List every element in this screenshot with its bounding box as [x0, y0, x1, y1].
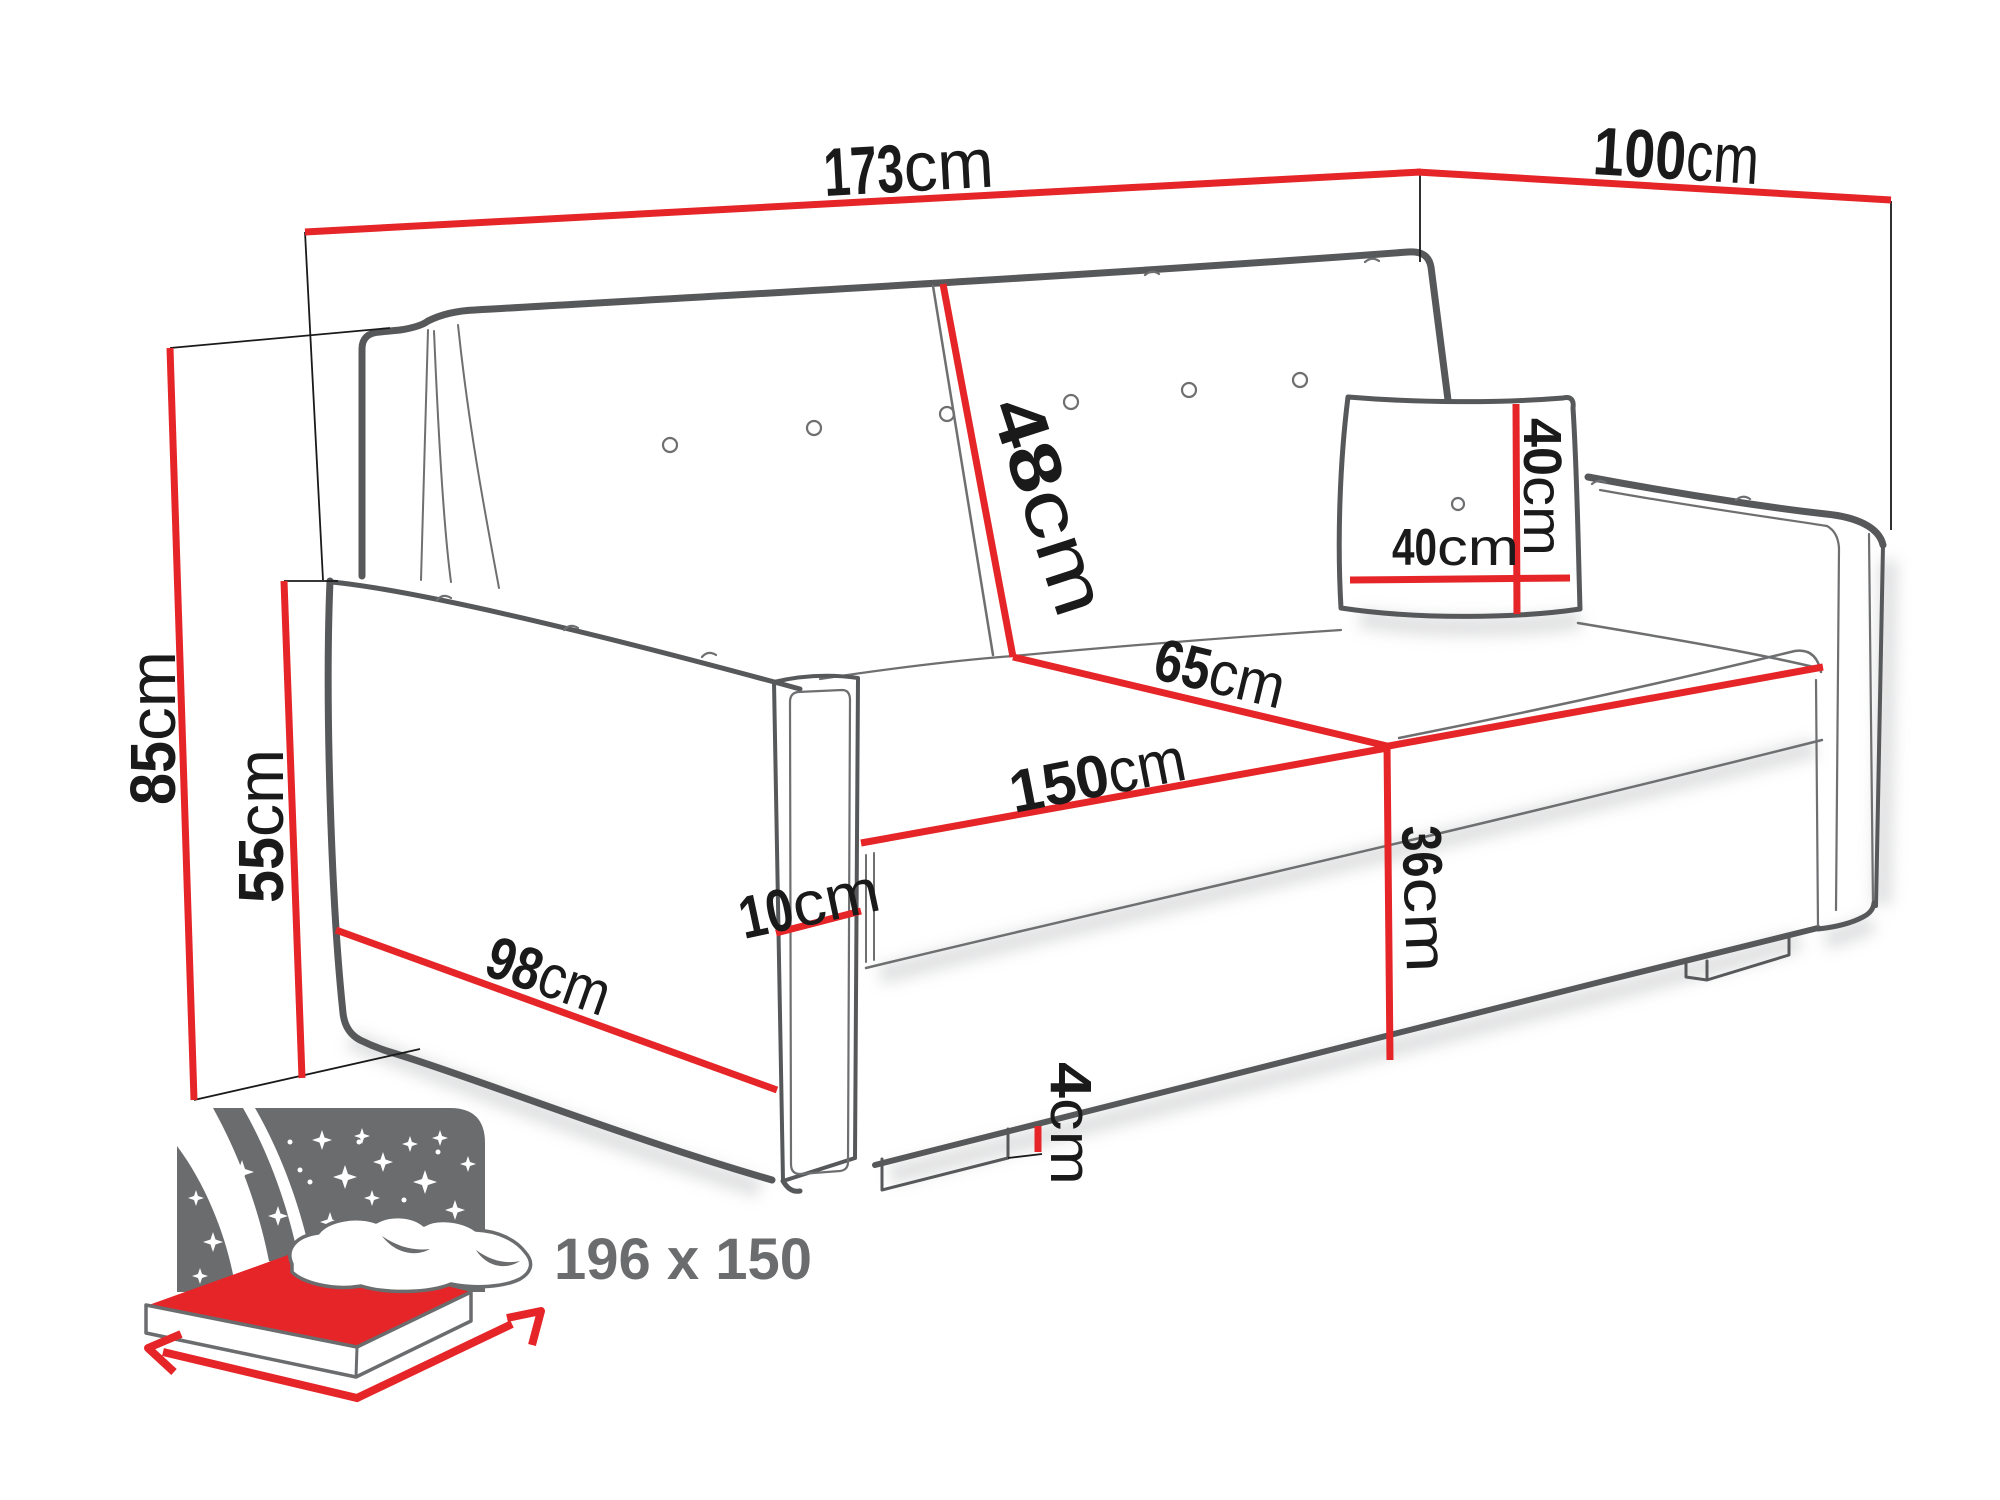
svg-text:40cm: 40cm	[1392, 519, 1519, 577]
svg-text:4cm: 4cm	[1038, 1062, 1103, 1185]
svg-text:100cm: 100cm	[1591, 111, 1761, 199]
svg-text:55cm: 55cm	[223, 749, 297, 903]
svg-text:196 x 150: 196 x 150	[554, 1227, 812, 1292]
svg-text:173cm: 173cm	[821, 124, 995, 211]
svg-text:36cm: 36cm	[1389, 824, 1459, 973]
svg-text:85cm: 85cm	[115, 651, 189, 805]
svg-text:40cm: 40cm	[1512, 418, 1575, 556]
